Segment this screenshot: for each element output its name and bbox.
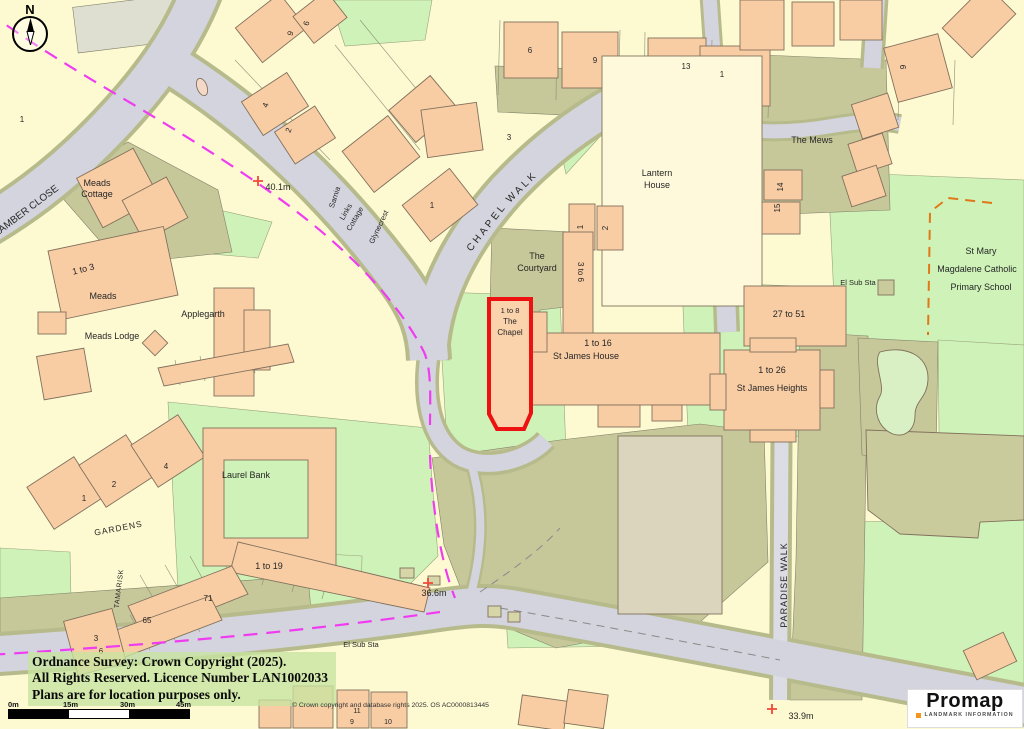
map-label: 6 bbox=[528, 46, 533, 55]
map-label: 1 bbox=[20, 115, 25, 124]
map-label: 2 bbox=[601, 225, 610, 230]
copyright-attribution: Ordnance Survey: Crown Copyright (2025).… bbox=[28, 652, 336, 706]
map-label: 3 bbox=[507, 133, 512, 142]
map-label: The bbox=[529, 251, 545, 261]
map-label: 33.9m bbox=[788, 711, 813, 721]
map-label: St Mary bbox=[965, 246, 997, 256]
map-label: 9 bbox=[593, 56, 598, 65]
map-label: Lantern bbox=[642, 168, 673, 178]
map-label: The bbox=[503, 317, 517, 326]
map-label: 15 bbox=[773, 203, 782, 212]
compass-needle-icon bbox=[17, 18, 44, 45]
scale-tick: 30m bbox=[120, 700, 135, 709]
map-label: The Mews bbox=[791, 135, 833, 145]
attribution-line-1: Ordnance Survey: Crown Copyright (2025). bbox=[32, 654, 328, 670]
map-label: PARADISE WALK bbox=[779, 542, 789, 628]
promap-tagline-row: LANDMARK INFORMATION bbox=[908, 712, 1022, 718]
scale-bar: 0m 15m 30m 45m bbox=[8, 700, 190, 719]
map-canvas: LAMBER CLOSEMeadsCottage1 to 3MeadsApple… bbox=[0, 0, 1024, 729]
os-credit-text: © Crown copyright and database rights 20… bbox=[292, 702, 489, 709]
north-letter: N bbox=[10, 4, 50, 16]
scale-tick: 0m bbox=[8, 700, 19, 709]
compass-circle-icon bbox=[12, 16, 48, 52]
map-label: Meads bbox=[83, 178, 111, 188]
map-label: 3 to 6 bbox=[576, 262, 585, 283]
scale-bar-segments bbox=[8, 709, 190, 719]
map-label: 4 bbox=[164, 462, 169, 471]
scale-bar-ticks: 0m 15m 30m 45m bbox=[8, 700, 190, 709]
map-label: 9 bbox=[350, 719, 354, 726]
map-label: 11 bbox=[353, 708, 360, 715]
map-label: 3 bbox=[94, 634, 99, 643]
map-label: House bbox=[644, 180, 670, 190]
map-label: 36.6m bbox=[421, 588, 446, 598]
map-label: 1 to 16 bbox=[584, 338, 612, 348]
map-label: 1 bbox=[576, 224, 585, 229]
map-label: 10 bbox=[384, 719, 392, 726]
promap-logo: Promap LANDMARK INFORMATION bbox=[908, 690, 1022, 727]
scale-segment bbox=[69, 710, 129, 718]
map-label: 65 bbox=[143, 616, 152, 625]
map-label: El Sub Sta bbox=[343, 640, 379, 649]
map-label: 14 bbox=[776, 182, 785, 191]
scale-tick: 15m bbox=[63, 700, 78, 709]
map-page: { "colors": { "parcel_yellow": "#FDFAD2"… bbox=[0, 0, 1024, 729]
north-arrow: N bbox=[10, 4, 50, 56]
map-label: 40.1m bbox=[265, 182, 290, 192]
map-label: 1 bbox=[430, 201, 435, 210]
map-label: Applegarth bbox=[181, 309, 225, 319]
scale-segment bbox=[9, 710, 69, 718]
promap-brand-text: Promap bbox=[908, 690, 1022, 713]
map-label: 27 to 51 bbox=[773, 309, 806, 319]
map-label: 13 bbox=[682, 62, 691, 71]
map-label: 1 to 8 bbox=[501, 306, 520, 315]
map-label: 71 bbox=[204, 594, 213, 603]
map-label: St James House bbox=[553, 351, 619, 361]
map-label: 1 bbox=[82, 494, 87, 503]
map-label: 1 bbox=[720, 70, 725, 79]
map-label: 1 to 26 bbox=[758, 365, 786, 375]
attribution-line-2: All Rights Reserved. Licence Number LAN1… bbox=[32, 670, 328, 686]
map-label: St James Heights bbox=[737, 383, 808, 393]
map-label: Cottage bbox=[81, 189, 113, 199]
map-label: Chapel bbox=[497, 328, 523, 337]
map-label: 1 to 19 bbox=[255, 561, 283, 571]
map-label: Primary School bbox=[950, 282, 1011, 292]
scale-segment bbox=[129, 710, 189, 718]
landmark-dot-icon bbox=[916, 713, 921, 718]
map-label: 9 bbox=[899, 64, 908, 69]
map-label: Courtyard bbox=[517, 263, 557, 273]
map-label: Laurel Bank bbox=[222, 470, 271, 480]
map-label: 2 bbox=[112, 480, 117, 489]
map-label: Magdalene Catholic bbox=[937, 264, 1017, 274]
map-label: Meads bbox=[89, 291, 117, 301]
scale-tick: 45m bbox=[176, 700, 191, 709]
map-label: Meads Lodge bbox=[85, 331, 140, 341]
map-label: El Sub Sta bbox=[840, 278, 876, 287]
promap-tagline-text: LANDMARK INFORMATION bbox=[924, 712, 1013, 718]
